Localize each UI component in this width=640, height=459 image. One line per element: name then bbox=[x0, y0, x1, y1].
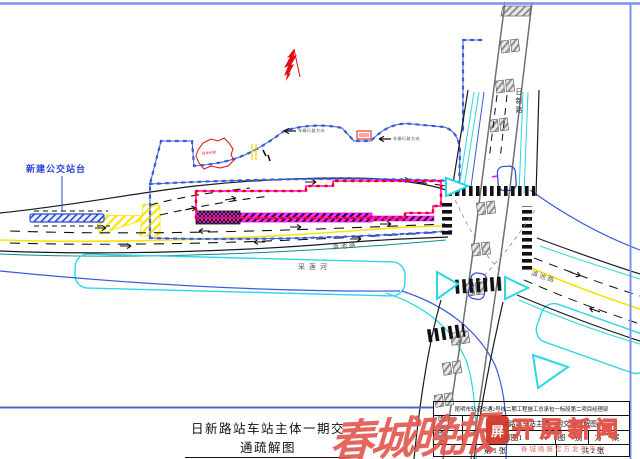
sheet-frame bbox=[0, 3, 640, 459]
watermark-logo-glyph: 屏 bbox=[491, 421, 504, 440]
station-enclosure bbox=[196, 181, 441, 224]
watermark-slogan: 春城晚报官方发布平台 bbox=[521, 443, 606, 453]
watermark-newspaper-name: 春城晚报 bbox=[328, 398, 495, 459]
drawing-sheet: 新建公交站台 现状大树 车辆行驶方向 车辆行驶方向 滇池路 采莲河 滇池路 日新… bbox=[0, 0, 640, 459]
north-approach-road bbox=[451, 90, 539, 196]
watermark-app-name: 开屏新闻 bbox=[512, 412, 624, 444]
southeast-road bbox=[517, 238, 640, 344]
river-label: 采莲河 bbox=[298, 262, 331, 272]
flow-direction-note-2: 车辆行驶方向 bbox=[393, 136, 420, 142]
drawing-title: 日新路站车站主体一期交通疏解图 bbox=[185, 418, 351, 459]
watermark-app-logo-icon: 屏 bbox=[486, 416, 509, 444]
vertical-road-label: 日新路 bbox=[514, 88, 524, 115]
bus-platform-note: 新建公交站台 bbox=[26, 162, 86, 175]
construction-fence bbox=[150, 40, 481, 239]
north-arrow-icon bbox=[284, 49, 300, 81]
bus-platform bbox=[30, 176, 110, 226]
intersection bbox=[424, 178, 568, 388]
flow-direction-note-1: 车辆行驶方向 bbox=[298, 128, 325, 134]
traffic-plan-drawing bbox=[0, 0, 640, 459]
